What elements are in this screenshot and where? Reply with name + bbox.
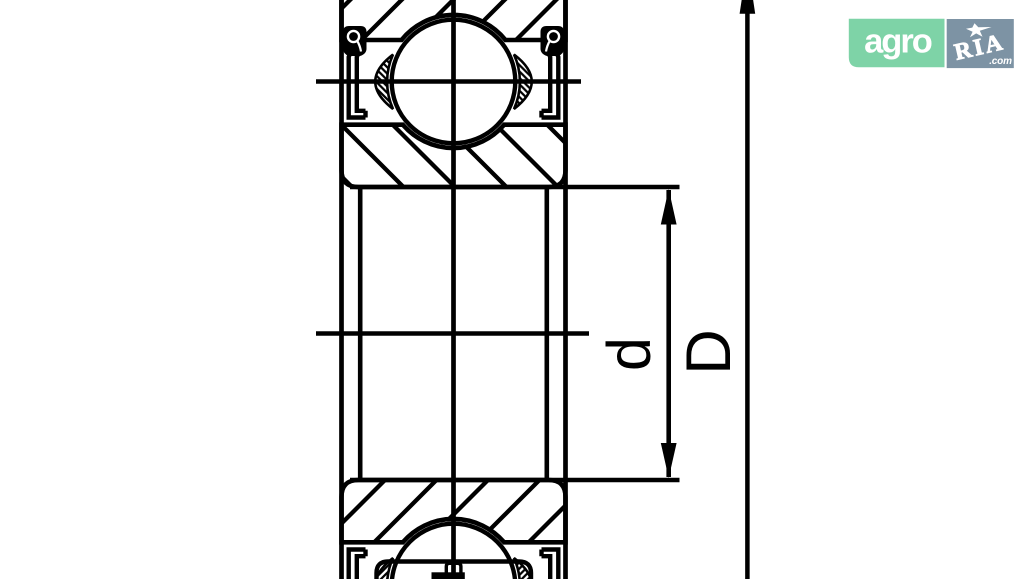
svg-text:d: d <box>595 337 663 371</box>
svg-text:D: D <box>674 329 744 375</box>
svg-text:.com: .com <box>989 56 1012 67</box>
svg-text:agro: agro <box>864 22 932 60</box>
